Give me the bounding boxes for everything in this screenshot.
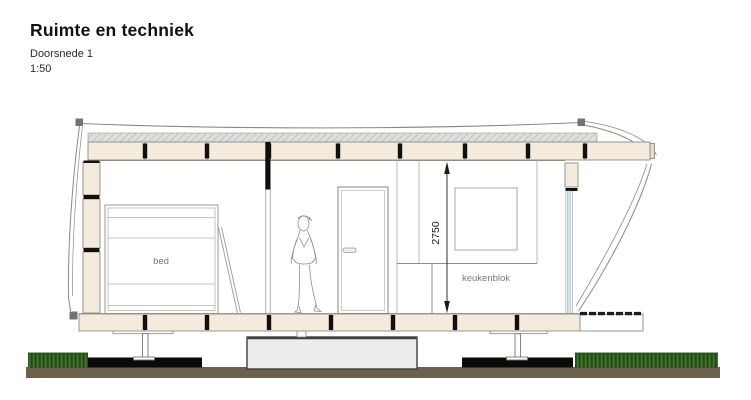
kitchen-window bbox=[455, 188, 517, 250]
door bbox=[338, 187, 388, 314]
person-vneck bbox=[300, 238, 310, 248]
dimension-label: 2750 bbox=[430, 221, 442, 245]
anchor-bottom-left bbox=[70, 312, 78, 320]
ladder bbox=[219, 227, 241, 313]
person-leg-right bbox=[310, 265, 322, 312]
person-figure bbox=[291, 216, 321, 313]
kitchen-block bbox=[397, 161, 537, 314]
grass-left bbox=[28, 353, 88, 369]
page: Ruimte en techniek Doorsnede 1 1:50 bbox=[0, 0, 751, 400]
roof-hatch bbox=[88, 133, 597, 142]
deck bbox=[580, 314, 643, 331]
glass-pane bbox=[566, 191, 573, 314]
grass-right bbox=[575, 353, 718, 369]
roof-panels bbox=[88, 142, 655, 160]
right-wall-panel bbox=[565, 163, 578, 191]
dimension-line-2750: 2750 bbox=[430, 162, 450, 313]
left-wall-panels bbox=[83, 162, 100, 313]
door-handle bbox=[343, 248, 356, 253]
fabric-left-inner bbox=[72, 126, 82, 296]
section-drawing: bed k bbox=[0, 0, 751, 400]
person-leg-left bbox=[295, 265, 301, 313]
roof-end-cap bbox=[650, 144, 655, 159]
bed-label: bed bbox=[153, 256, 169, 267]
person-arm-right bbox=[311, 239, 317, 264]
anchor-top-left bbox=[76, 119, 84, 127]
kitchen-label: keukenblok bbox=[462, 273, 510, 284]
under-floor-plates bbox=[113, 331, 547, 338]
pedestal-left bbox=[134, 334, 155, 360]
foundation-block bbox=[247, 337, 417, 369]
fabric-right-lower-inner bbox=[576, 164, 647, 306]
fabric-top bbox=[80, 123, 580, 128]
foundation-pad bbox=[297, 331, 306, 338]
pedestal-right bbox=[507, 334, 528, 360]
anchor-top-right bbox=[578, 119, 586, 127]
fabric-left-outer bbox=[68, 126, 79, 311]
interior-post bbox=[265, 142, 270, 314]
